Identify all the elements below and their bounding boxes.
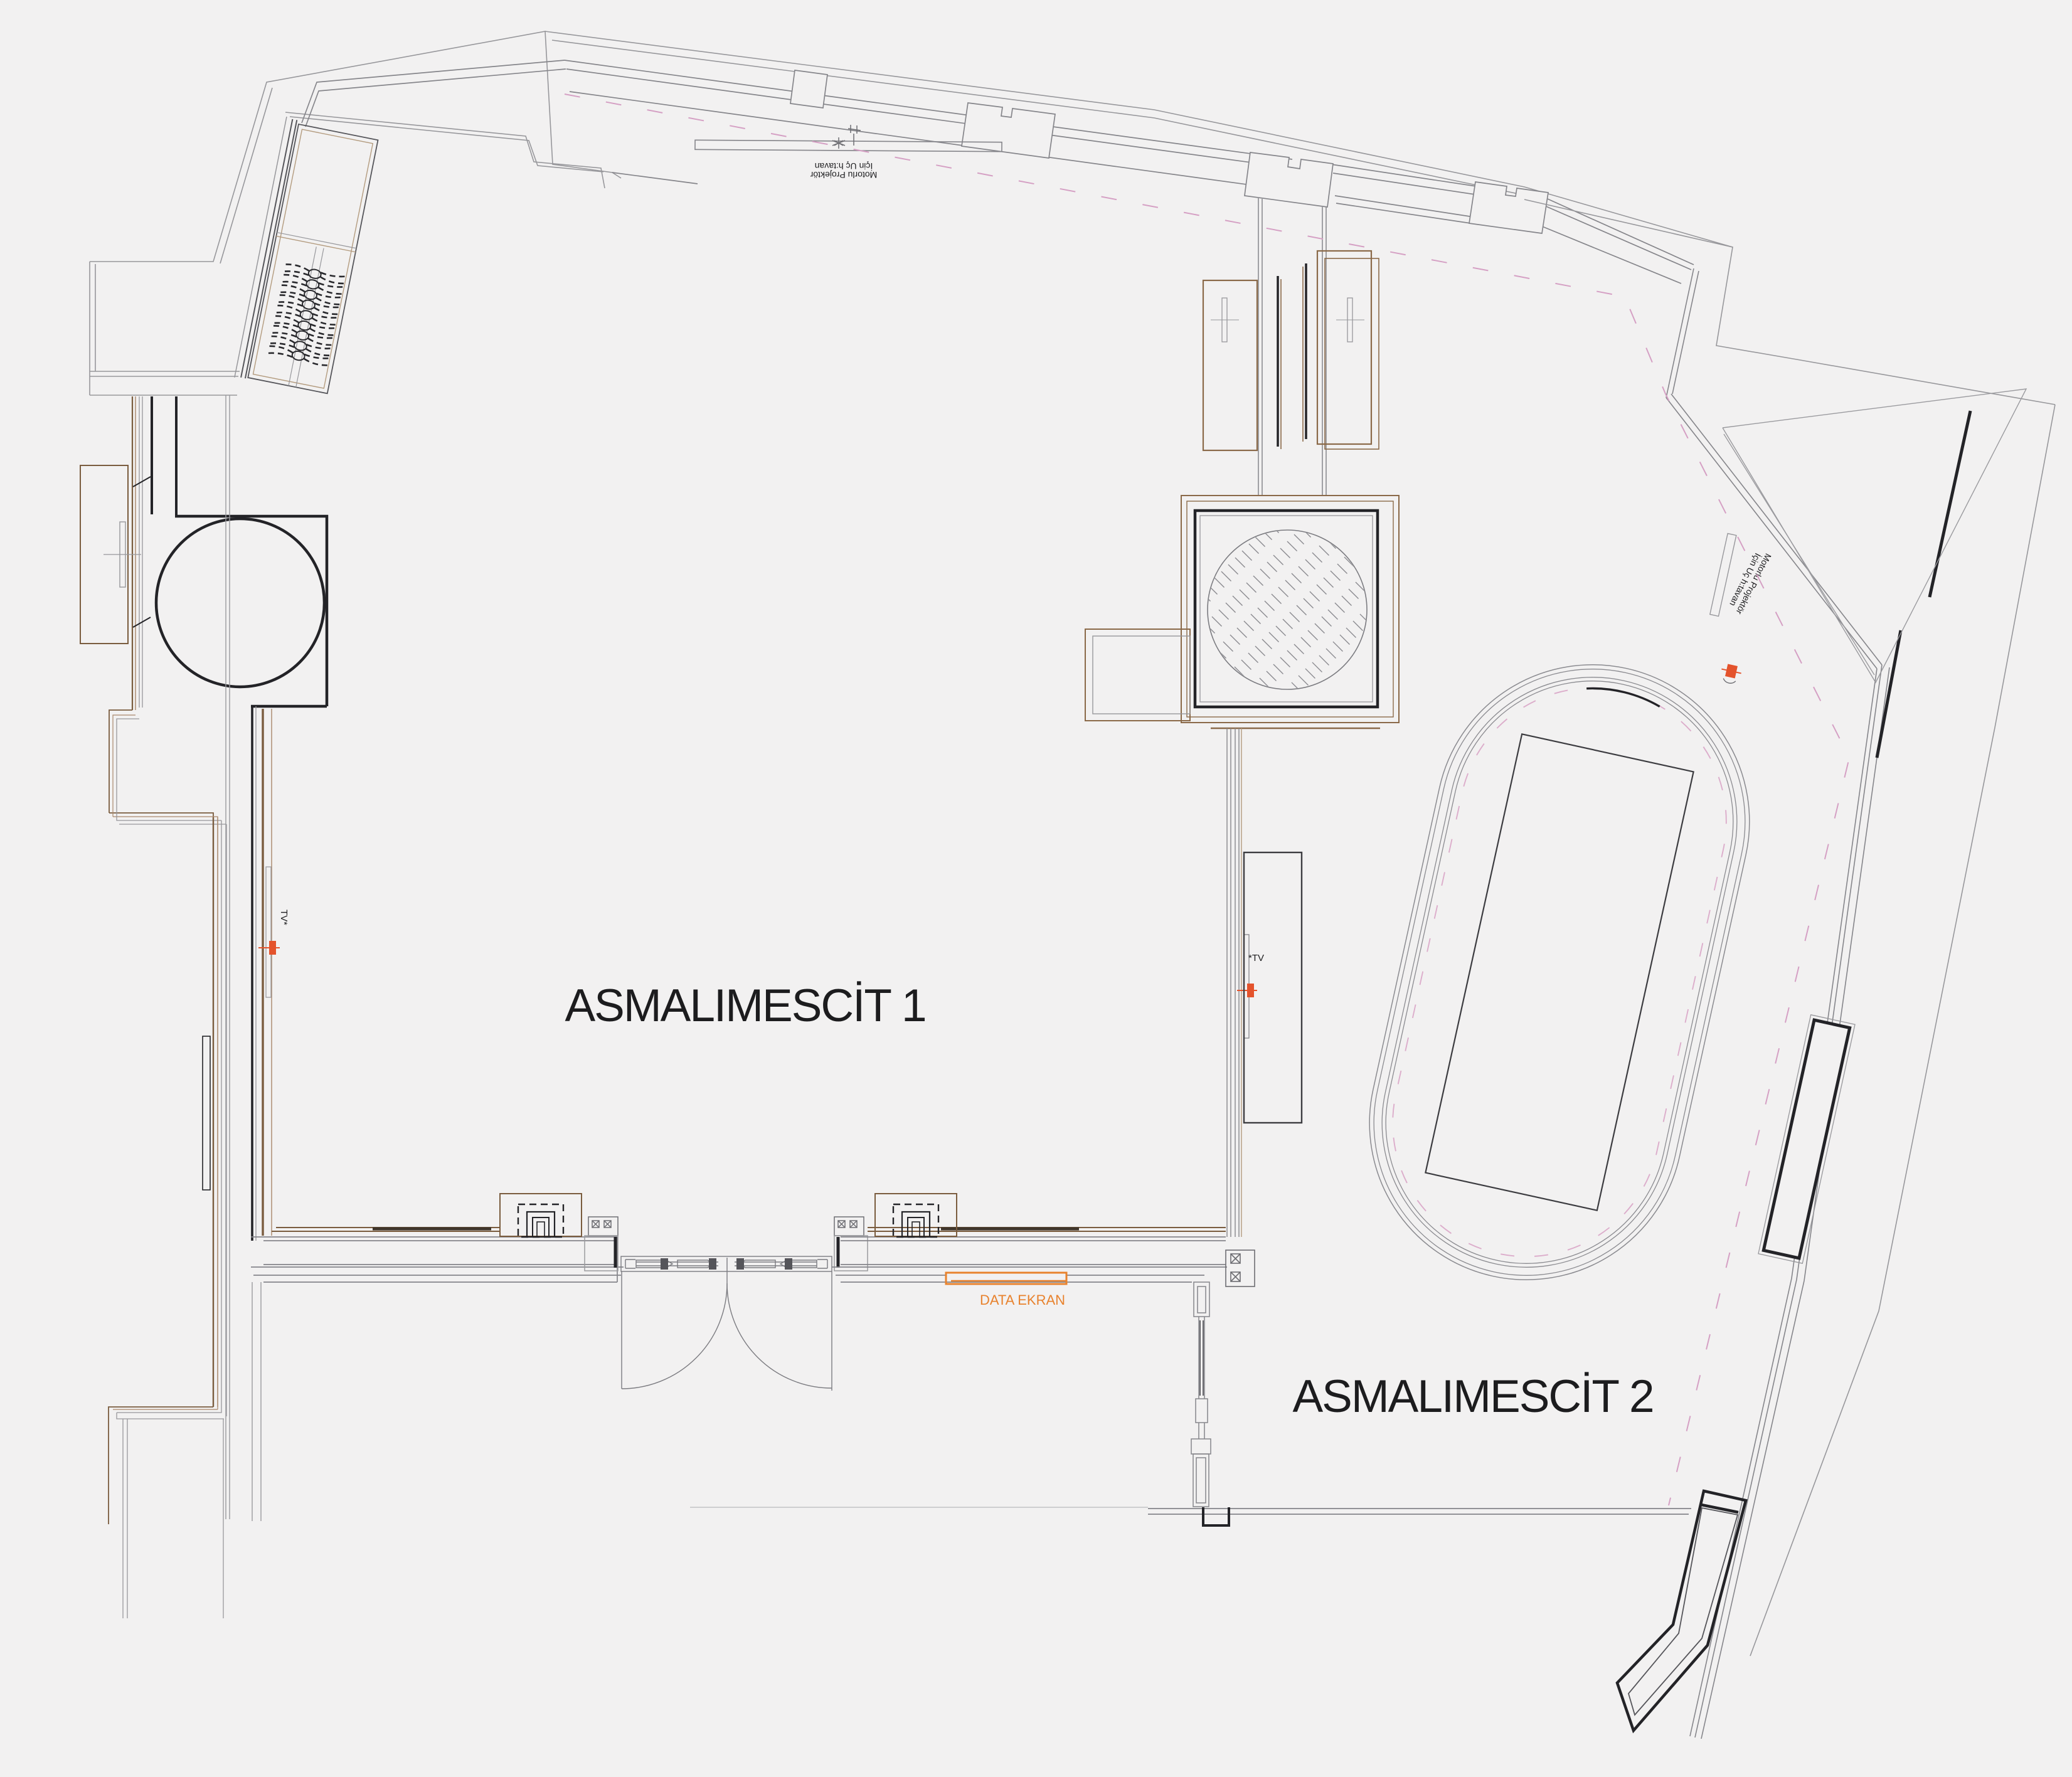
svg-text:ASMALIMESCİT 1: ASMALIMESCİT 1	[565, 980, 925, 1031]
svg-text:DATA EKRAN: DATA EKRAN	[980, 1292, 1065, 1308]
svg-text:İçin Uç h:tavan: İçin Uç h:tavan	[815, 161, 873, 172]
svg-text:ASMALIMESCİT 2: ASMALIMESCİT 2	[1292, 1371, 1653, 1422]
svg-text:TV*: TV*	[279, 910, 289, 925]
svg-text:*TV: *TV	[1248, 953, 1264, 963]
